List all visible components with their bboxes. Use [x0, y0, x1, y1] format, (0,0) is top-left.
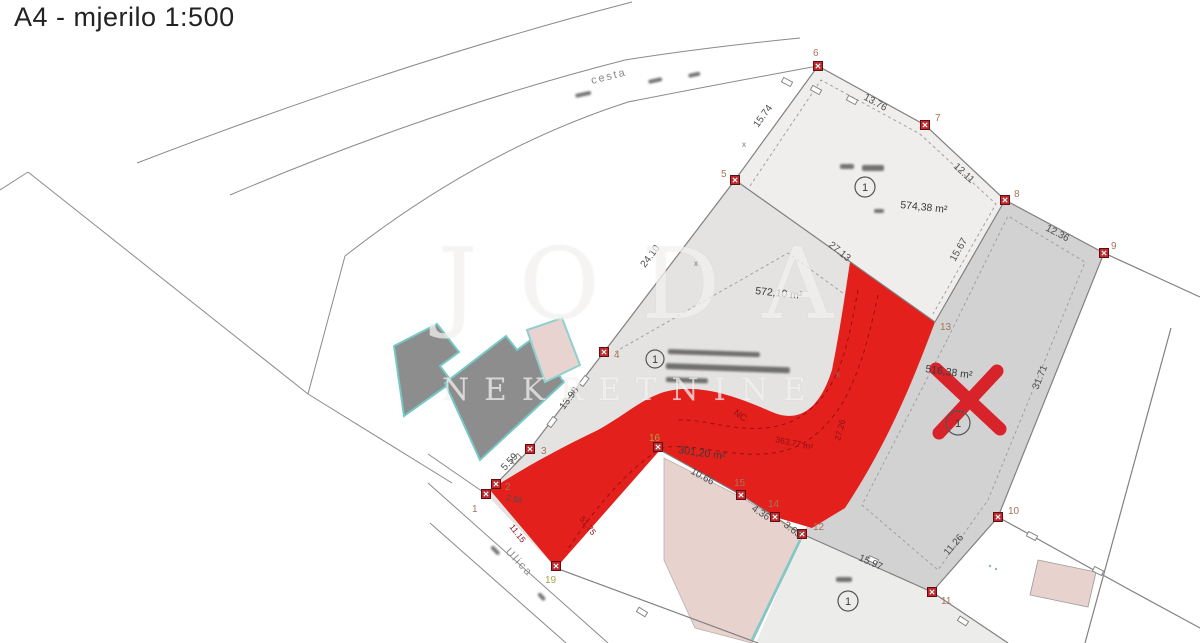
page-title: A4 - mjerilo 1:500 — [14, 2, 235, 33]
point-marker-5 — [731, 176, 740, 185]
svg-text:12: 12 — [813, 522, 825, 533]
svg-text:7: 7 — [935, 113, 941, 124]
point-marker-8 — [1001, 196, 1010, 205]
svg-text:11: 11 — [941, 596, 952, 607]
svg-text:15: 15 — [734, 478, 746, 489]
svg-text:8: 8 — [1014, 189, 1020, 200]
svg-text:15.74: 15.74 — [752, 103, 776, 130]
site-plan-page: x x x x 1 1 1 1 — [0, 0, 1200, 643]
svg-text:6: 6 — [813, 48, 819, 59]
svg-text:3: 3 — [541, 446, 547, 457]
bottom-street-label: Ulica — [503, 546, 535, 579]
point-marker-2 — [492, 480, 501, 489]
svg-text:1: 1 — [955, 418, 961, 430]
point-marker-10 — [994, 513, 1003, 522]
svg-text:14: 14 — [768, 499, 780, 510]
point-marker-14 — [771, 513, 780, 522]
svg-text:x: x — [694, 259, 698, 268]
point-marker-15 — [737, 491, 746, 500]
svg-text:1: 1 — [845, 596, 851, 608]
point-marker-7 — [921, 121, 930, 130]
point-marker-1 — [482, 490, 491, 499]
top-road-label: cesta — [590, 66, 628, 86]
green-scribble — [989, 565, 997, 570]
svg-text:9: 9 — [1111, 241, 1117, 252]
svg-text:16: 16 — [649, 433, 661, 444]
parcel-pink-right — [1030, 560, 1096, 607]
building-left-l-shape — [394, 324, 459, 416]
point-marker-9 — [1100, 249, 1109, 258]
svg-text:2: 2 — [505, 482, 511, 493]
svg-text:13: 13 — [940, 322, 952, 333]
site-plan-drawing: x x x x 1 1 1 1 — [0, 0, 1200, 643]
svg-text:x: x — [836, 370, 840, 379]
svg-text:x: x — [742, 140, 746, 149]
point-marker-4 — [600, 348, 609, 357]
point-marker-19 — [552, 562, 561, 571]
svg-text:4: 4 — [614, 350, 620, 361]
svg-text:19: 19 — [545, 575, 557, 586]
point-marker-11 — [928, 588, 937, 597]
svg-text:1: 1 — [862, 182, 868, 194]
svg-text:5: 5 — [721, 169, 727, 180]
svg-text:10: 10 — [1008, 506, 1020, 517]
svg-text:1: 1 — [652, 354, 658, 366]
svg-text:1: 1 — [472, 504, 478, 515]
point-marker-3 — [526, 445, 535, 454]
svg-text:24.10: 24.10 — [639, 243, 663, 270]
point-marker-6 — [814, 62, 823, 71]
